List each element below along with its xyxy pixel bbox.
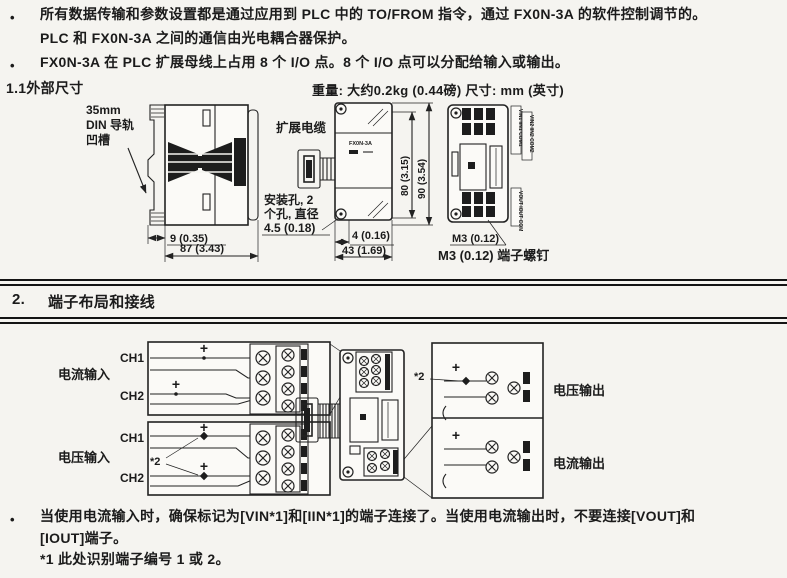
dim-43-label: 43 (1.69) bbox=[342, 245, 386, 257]
voltage-input-label: 电压输入 bbox=[58, 450, 110, 465]
current-input-section: 电流输入 CH1 CH2 + + bbox=[58, 340, 330, 415]
divider-rule bbox=[0, 317, 787, 319]
intro-line-2: PLC 和 FX0N-3A 之间的通信由光电耦合器保护。 bbox=[40, 30, 356, 47]
dim-4-label: 4 (0.16) bbox=[352, 230, 390, 242]
current-output-label: 电流输出 bbox=[553, 456, 605, 471]
ch2-label: CH2 bbox=[120, 471, 144, 485]
manual-page: • 所有数据传输和参数设置都是通过应用到 PLC 中的 TO/FROM 指令，通… bbox=[0, 0, 787, 578]
mounting-hole-leader bbox=[322, 218, 339, 230]
plus-mark: + bbox=[200, 458, 208, 474]
dim-80-label: 80 (3.15) bbox=[400, 156, 411, 196]
side-view-drawing: 35mm DIN 导轨 凹槽 9 (0.35) bbox=[86, 103, 258, 262]
m3-screw-label: M3 (0.12) 端子螺钉 bbox=[438, 248, 549, 263]
note-line-1: 当使用电流输入时，确保标记为[VIN*1]和[IIN*1]的端子连接了。当使用电… bbox=[40, 508, 695, 525]
input-terminal-block bbox=[250, 424, 308, 494]
mounting-hole-label-2: 个孔, 直径 bbox=[263, 206, 319, 221]
wiring-diagram: 电流输入 CH1 CH2 + + 电压输入 CH1 CH2 + *2 + bbox=[0, 328, 787, 504]
bullet-2: • bbox=[10, 58, 15, 73]
din-rail-label-2: DIN 导轨 bbox=[86, 117, 134, 132]
divider-rule bbox=[0, 279, 787, 281]
plus-mark: + bbox=[172, 376, 180, 392]
mounting-hole-label-1: 安装孔, 2 bbox=[264, 192, 314, 207]
star2-mark: *2 bbox=[150, 456, 160, 468]
din-rail-label-1: 35mm bbox=[86, 103, 121, 117]
extension-cable-connector bbox=[298, 150, 335, 188]
intro-line-1: 所有数据传输和参数设置都是通过应用到 PLC 中的 TO/FROM 指令，通过 … bbox=[40, 6, 707, 23]
mounting-hole-label-3: 4.5 (0.18) bbox=[264, 221, 315, 235]
section2-heading: 端子布局和接线 bbox=[48, 291, 155, 312]
input-terminal-block bbox=[250, 344, 308, 414]
note-line-2: [IOUT]端子。 bbox=[40, 530, 127, 547]
dimensions-diagram: 35mm DIN 导轨 凹槽 9 (0.35) bbox=[0, 96, 787, 278]
output-sections: *2 + + bbox=[414, 343, 605, 498]
ch2-label: CH2 bbox=[120, 389, 144, 403]
divider-rule bbox=[0, 322, 787, 324]
section2-number: 2. bbox=[12, 291, 25, 308]
front-view-drawing: 扩展电缆 FX0N-3A 安装孔, 2 个孔, 直径 4.5 (0.18) bbox=[262, 103, 433, 261]
plus-mark: + bbox=[452, 427, 460, 443]
ch1-label: CH1 bbox=[120, 351, 144, 365]
terminal-names-input2: VIN2 IIN2 COM2 bbox=[528, 115, 534, 153]
din-leader-arrow bbox=[128, 148, 146, 193]
plus-mark: + bbox=[452, 359, 460, 375]
dim-87-label: 87 (3.43) bbox=[180, 243, 224, 255]
voltage-input-section: 电压输入 CH1 CH2 + *2 + bbox=[58, 419, 330, 495]
section1-heading: 1.1外部尺寸 bbox=[6, 80, 84, 97]
mounting-hole-top bbox=[336, 104, 346, 114]
din-rail-label-3: 凹槽 bbox=[86, 132, 110, 147]
current-input-label: 电流输入 bbox=[58, 367, 110, 382]
extension-cable-label: 扩展电缆 bbox=[276, 120, 327, 135]
voltage-output-label: 电压输出 bbox=[553, 383, 605, 398]
ch1-label: CH1 bbox=[120, 431, 144, 445]
dim-90-label: 90 (3.54) bbox=[417, 159, 428, 199]
footnote: *1 此处识别端子编号 1 或 2。 bbox=[40, 551, 230, 568]
note-bullet: • bbox=[10, 512, 15, 527]
terminal-names-output: VOUT IOUT COM bbox=[517, 191, 523, 231]
module-name-label: FX0N-3A bbox=[349, 141, 372, 147]
divider-rule bbox=[0, 284, 787, 286]
plus-mark: + bbox=[200, 340, 208, 356]
m3-label: M3 (0.12) bbox=[452, 233, 499, 245]
star2-mark: *2 bbox=[414, 371, 424, 383]
extension-cable-connector bbox=[296, 398, 340, 442]
bullet-1: • bbox=[10, 10, 15, 25]
mounting-hole-bottom bbox=[336, 209, 346, 219]
intro-line-3: FX0N-3A 在 PLC 扩展母线上占用 8 个 I/O 点。8 个 I/O … bbox=[40, 54, 569, 71]
terminal-view-drawing: VIN1 IIN1 COM1 VIN2 IIN2 COM2 VOUT IOUT … bbox=[438, 105, 549, 263]
